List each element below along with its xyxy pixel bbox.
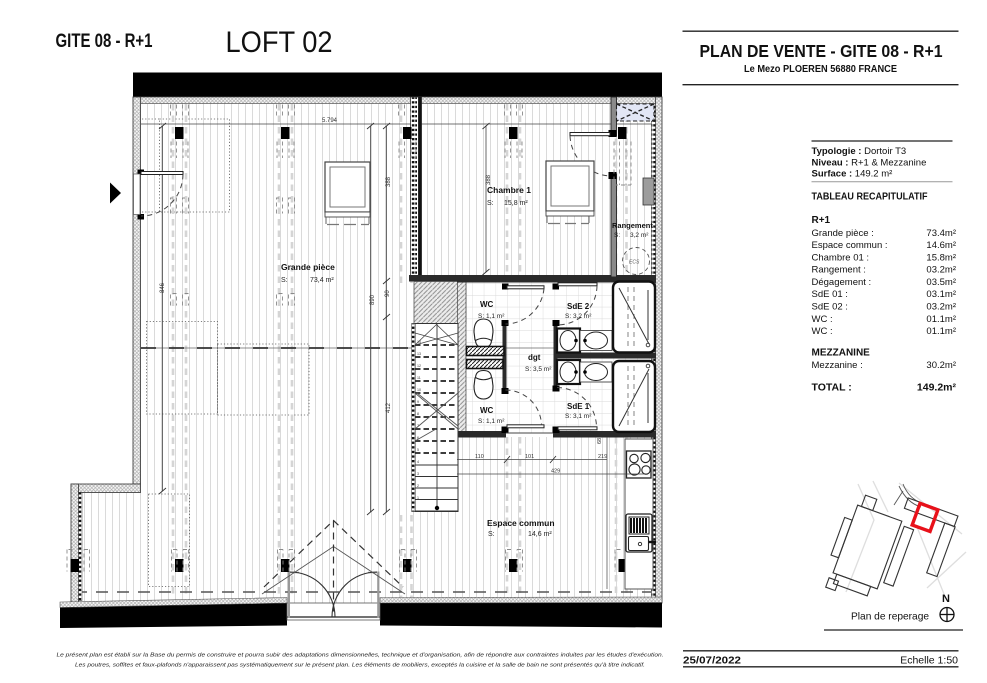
svg-text:15,8 m²: 15,8 m²	[504, 200, 528, 207]
svg-text:PLAN DE VENTE - GITE 08 - R+1: PLAN DE VENTE - GITE 08 - R+1	[700, 41, 943, 61]
svg-text:3,2 m²: 3,2 m²	[630, 232, 649, 239]
svg-text:4: 4	[417, 460, 419, 464]
svg-text:Les poutres, soffites et faux-: Les poutres, soffites et faux-plafonds n…	[75, 663, 645, 669]
svg-text:412: 412	[386, 402, 392, 413]
svg-text:Mezzanine :: Mezzanine :	[812, 360, 863, 371]
svg-text:429: 429	[551, 469, 560, 475]
svg-text:14.6m²: 14.6m²	[926, 240, 956, 251]
svg-text:101: 101	[525, 454, 534, 460]
svg-text:14,6 m²: 14,6 m²	[528, 531, 552, 538]
svg-text:Plan de reperage: Plan de reperage	[851, 611, 929, 623]
svg-text:Grande pièce :: Grande pièce :	[812, 228, 874, 239]
svg-text:Espace commun: Espace commun	[487, 518, 555, 528]
svg-text:90: 90	[385, 290, 391, 297]
svg-text:Le Mezo PLOEREN 56880 FRANCE: Le Mezo PLOEREN 56880 FRANCE	[744, 64, 897, 75]
svg-text:11: 11	[417, 376, 421, 380]
svg-text:8: 8	[417, 412, 419, 416]
svg-text:03.5m²: 03.5m²	[926, 277, 956, 288]
svg-text:149.2m²: 149.2m²	[917, 382, 957, 394]
svg-text:N: N	[942, 593, 950, 605]
svg-text:S: 1,1 m²: S: 1,1 m²	[478, 418, 505, 425]
svg-text:Chambre 01 :: Chambre 01 :	[812, 252, 870, 263]
svg-text:25/07/2022: 25/07/2022	[683, 655, 741, 667]
svg-text:1: 1	[417, 496, 419, 500]
svg-text:Espace commun :: Espace commun :	[812, 240, 888, 251]
svg-text:890: 890	[370, 294, 376, 305]
svg-text:846: 846	[160, 282, 166, 293]
svg-text:03.1m²: 03.1m²	[926, 289, 956, 300]
svg-text:WC :: WC :	[812, 314, 833, 325]
svg-text:Niveau : R+1 & Mezzanine: Niveau : R+1 & Mezzanine	[812, 158, 927, 169]
svg-text:S: 1,1 m²: S: 1,1 m²	[478, 313, 505, 320]
svg-text:Le présent plan est établi sur: Le présent plan est établi sur la Base d…	[57, 653, 664, 659]
svg-text:Chambre 1: Chambre 1	[487, 185, 531, 195]
svg-text:15.8m²: 15.8m²	[926, 252, 956, 263]
svg-text:Rangement: Rangement	[612, 221, 653, 230]
svg-text:S:: S:	[488, 531, 495, 538]
svg-text:Dégagement :: Dégagement :	[812, 277, 872, 288]
svg-text:219: 219	[598, 454, 607, 460]
svg-text:R+1: R+1	[812, 215, 831, 226]
svg-text:WC: WC	[480, 406, 494, 415]
svg-text:03.2m²: 03.2m²	[926, 265, 956, 276]
svg-text:SdE 02 :: SdE 02 :	[812, 302, 848, 313]
svg-text:Surface : 149.2 m²: Surface : 149.2 m²	[812, 169, 893, 180]
svg-text:SdE 2: SdE 2	[567, 302, 590, 311]
svg-text:9: 9	[417, 400, 419, 404]
svg-text:ECS: ECS	[629, 260, 640, 266]
svg-text:WC :: WC :	[812, 326, 833, 337]
svg-text:GITE 08 - R+1: GITE 08 - R+1	[56, 31, 153, 52]
svg-text:MEZZANINE: MEZZANINE	[812, 348, 871, 359]
svg-text:73,4 m²: 73,4 m²	[310, 277, 334, 284]
svg-text:12: 12	[417, 364, 421, 368]
svg-text:30.2m²: 30.2m²	[926, 360, 956, 371]
svg-text:TOTAL :: TOTAL :	[812, 382, 852, 394]
svg-text:5.794: 5.794	[322, 118, 338, 124]
svg-text:S:: S:	[281, 277, 288, 284]
svg-text:TABLEAU RECAPITULATIF: TABLEAU RECAPITULATIF	[812, 192, 928, 203]
svg-text:03.2m²: 03.2m²	[926, 302, 956, 313]
svg-text:01.1m²: 01.1m²	[926, 314, 956, 325]
svg-text:Grande pièce: Grande pièce	[281, 262, 335, 272]
svg-text:13: 13	[417, 352, 421, 356]
svg-text:S:: S:	[487, 200, 494, 207]
svg-text:01.1m²: 01.1m²	[926, 326, 956, 337]
svg-text:S:: S:	[614, 232, 620, 239]
svg-text:388: 388	[386, 176, 392, 187]
svg-text:5: 5	[417, 448, 419, 452]
svg-text:WC: WC	[480, 300, 494, 309]
svg-text:388: 388	[486, 174, 492, 185]
svg-text:110: 110	[475, 454, 484, 460]
svg-text:2: 2	[417, 484, 419, 488]
svg-text:S: 3,5 m²: S: 3,5 m²	[525, 366, 552, 373]
svg-text:68: 68	[597, 438, 603, 444]
svg-text:10: 10	[417, 388, 421, 392]
svg-text:Rangement :: Rangement :	[812, 265, 866, 276]
svg-text:SdE 01 :: SdE 01 :	[812, 289, 848, 300]
svg-text:Echelle 1:50: Echelle 1:50	[900, 655, 958, 667]
svg-text:S: 3,1 m²: S: 3,1 m²	[565, 413, 592, 420]
svg-text:LOFT 02: LOFT 02	[226, 26, 333, 59]
svg-text:Typologie : Dortoir T3: Typologie : Dortoir T3	[812, 146, 907, 157]
svg-text:3: 3	[417, 472, 419, 476]
svg-text:73.4m²: 73.4m²	[926, 228, 956, 239]
svg-text:S: 3,2 m²: S: 3,2 m²	[565, 313, 592, 320]
svg-text:dgt: dgt	[528, 353, 541, 362]
svg-text:SdE 1: SdE 1	[567, 402, 590, 411]
